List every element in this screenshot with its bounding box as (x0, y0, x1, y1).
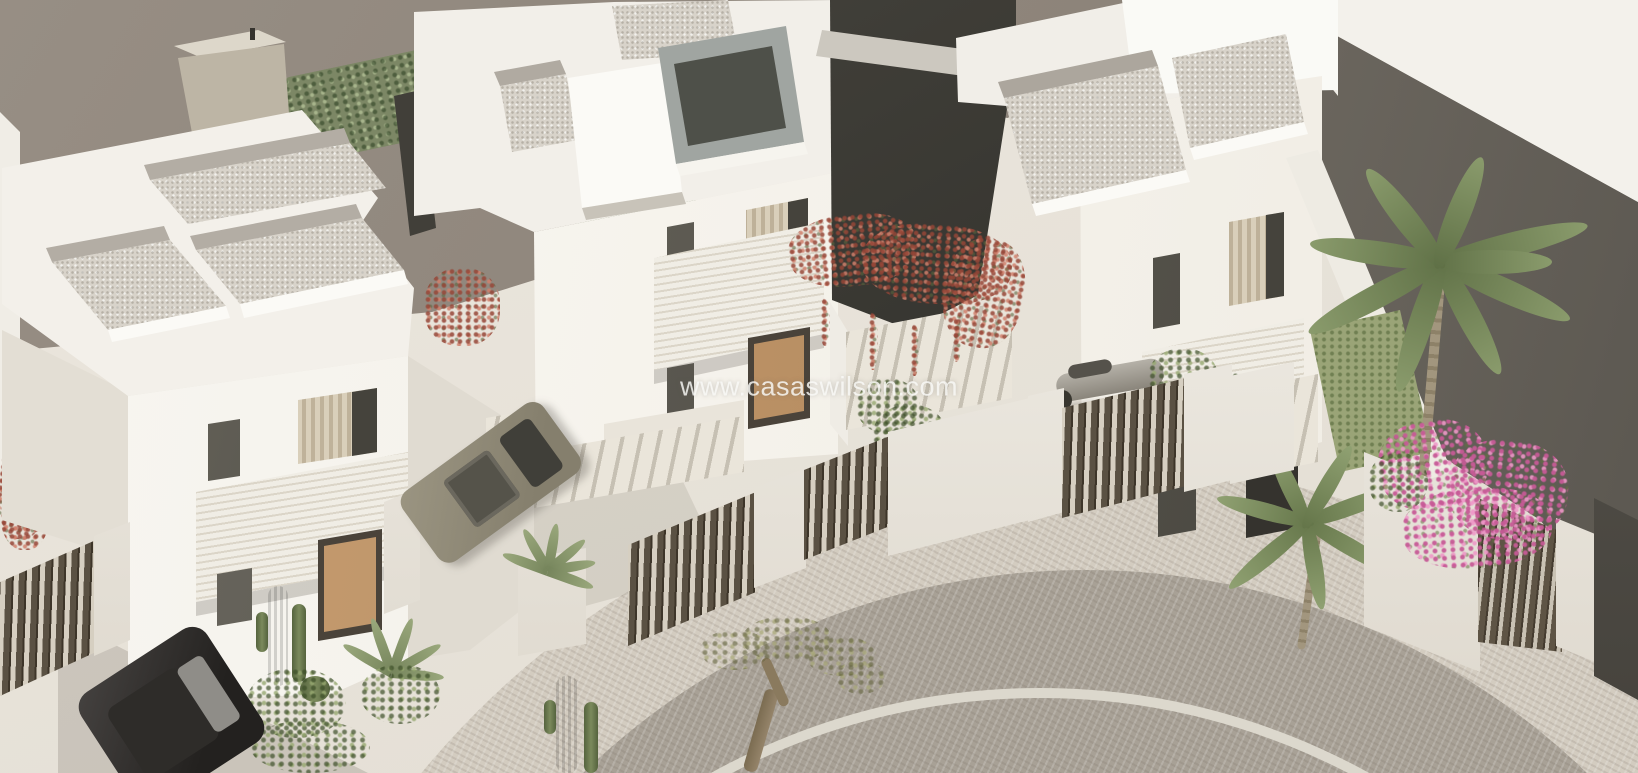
gnarled-tree-foliage-4 (836, 660, 886, 694)
watermark-text: www.casaswilson.com (680, 372, 958, 403)
bougainvillea-leaves (1368, 452, 1428, 512)
vine-tendril-3 (910, 324, 919, 376)
palm-tree-small (1300, 514, 1301, 515)
palmito-base (360, 664, 440, 724)
red-vine-mid (424, 268, 500, 346)
vine-tendril-4 (952, 318, 961, 362)
tall-cactus-arm (544, 700, 556, 734)
tall-cactus-2 (584, 702, 598, 773)
vine-tendril-2 (868, 312, 878, 370)
palm-tree-large (1432, 250, 1433, 251)
architectural-render-scene: www.casaswilson.com (0, 0, 1638, 773)
chimney-antenna (250, 28, 255, 40)
agave-plant (548, 566, 549, 567)
vine-tendril-1 (820, 298, 830, 346)
cactus-arm (256, 612, 268, 652)
tall-cactus (556, 676, 578, 773)
